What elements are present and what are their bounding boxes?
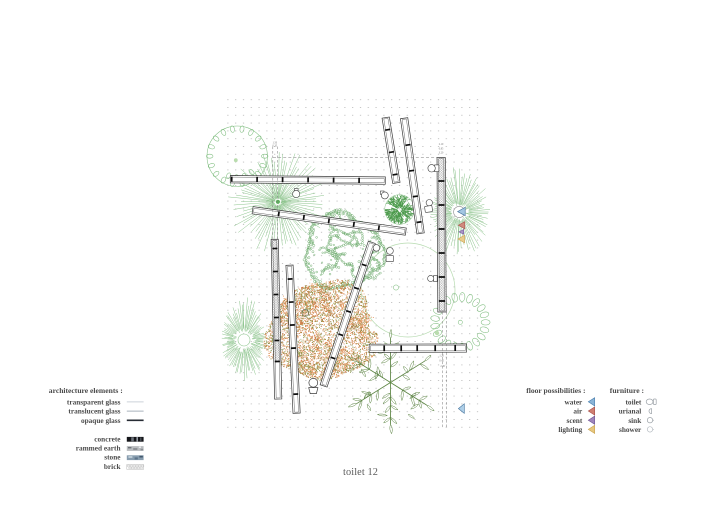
svg-text:2.10: 2.10 bbox=[439, 143, 444, 146]
svg-text:toilet: toilet bbox=[625, 398, 641, 407]
svg-text:2.30: 2.30 bbox=[440, 365, 445, 368]
svg-text:1.20: 1.20 bbox=[439, 355, 444, 358]
svg-text:scent: scent bbox=[566, 416, 582, 425]
svg-text:0.35: 0.35 bbox=[273, 145, 278, 148]
svg-text:3.20: 3.20 bbox=[439, 152, 444, 155]
svg-text:shower: shower bbox=[619, 425, 642, 434]
svg-text:lighting: lighting bbox=[558, 425, 582, 434]
svg-text:0.85: 0.85 bbox=[439, 147, 444, 150]
svg-text:water: water bbox=[564, 398, 583, 407]
svg-text:transparent glass: transparent glass bbox=[67, 398, 121, 407]
svg-text:0.45: 0.45 bbox=[439, 360, 444, 363]
svg-text:translucent glass: translucent glass bbox=[68, 407, 120, 416]
svg-text:sink: sink bbox=[628, 416, 642, 425]
svg-text:urianal: urianal bbox=[619, 407, 642, 416]
svg-text:opaque glass: opaque glass bbox=[81, 416, 121, 425]
svg-text:stone: stone bbox=[104, 453, 121, 462]
svg-text:furniture :: furniture : bbox=[610, 386, 644, 395]
svg-text:rammed earth: rammed earth bbox=[76, 444, 121, 453]
svg-text:floor possibilities :: floor possibilities : bbox=[526, 386, 585, 395]
svg-text:toilet 12: toilet 12 bbox=[343, 467, 378, 478]
svg-text:brick: brick bbox=[104, 462, 122, 471]
svg-text:air: air bbox=[573, 407, 583, 416]
svg-text:concrete: concrete bbox=[94, 434, 121, 443]
svg-text:architecture elements :: architecture elements : bbox=[49, 386, 123, 395]
